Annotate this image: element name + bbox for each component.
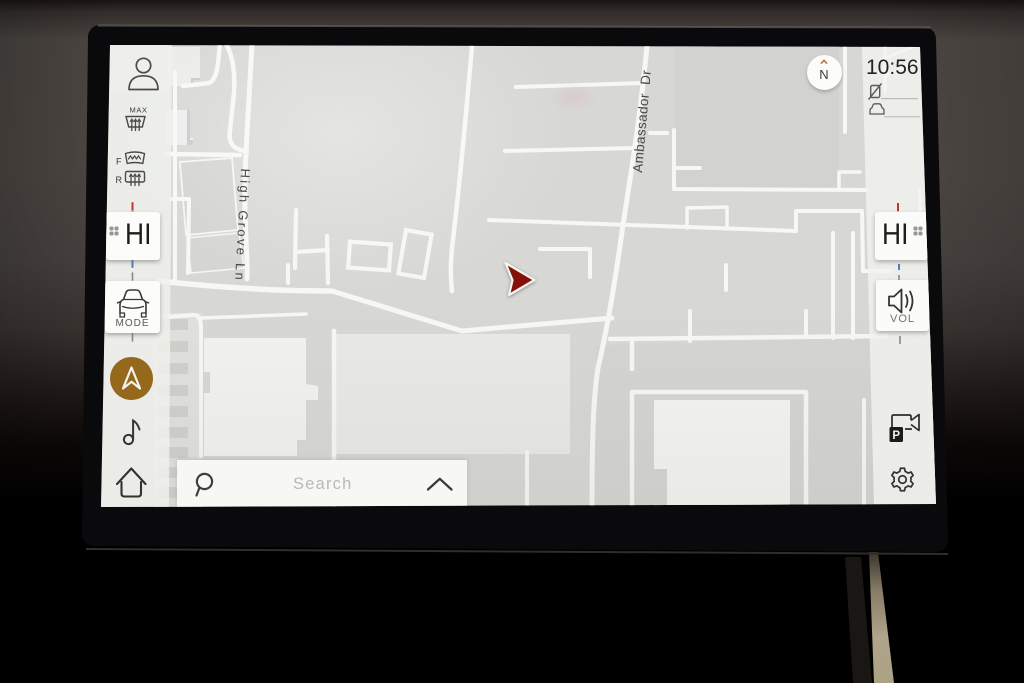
svg-text:N: N [819,67,828,82]
svg-text:P: P [892,430,900,442]
svg-text:F: F [116,157,122,167]
svg-text:MAX: MAX [130,106,148,115]
svg-text:R: R [116,175,123,185]
